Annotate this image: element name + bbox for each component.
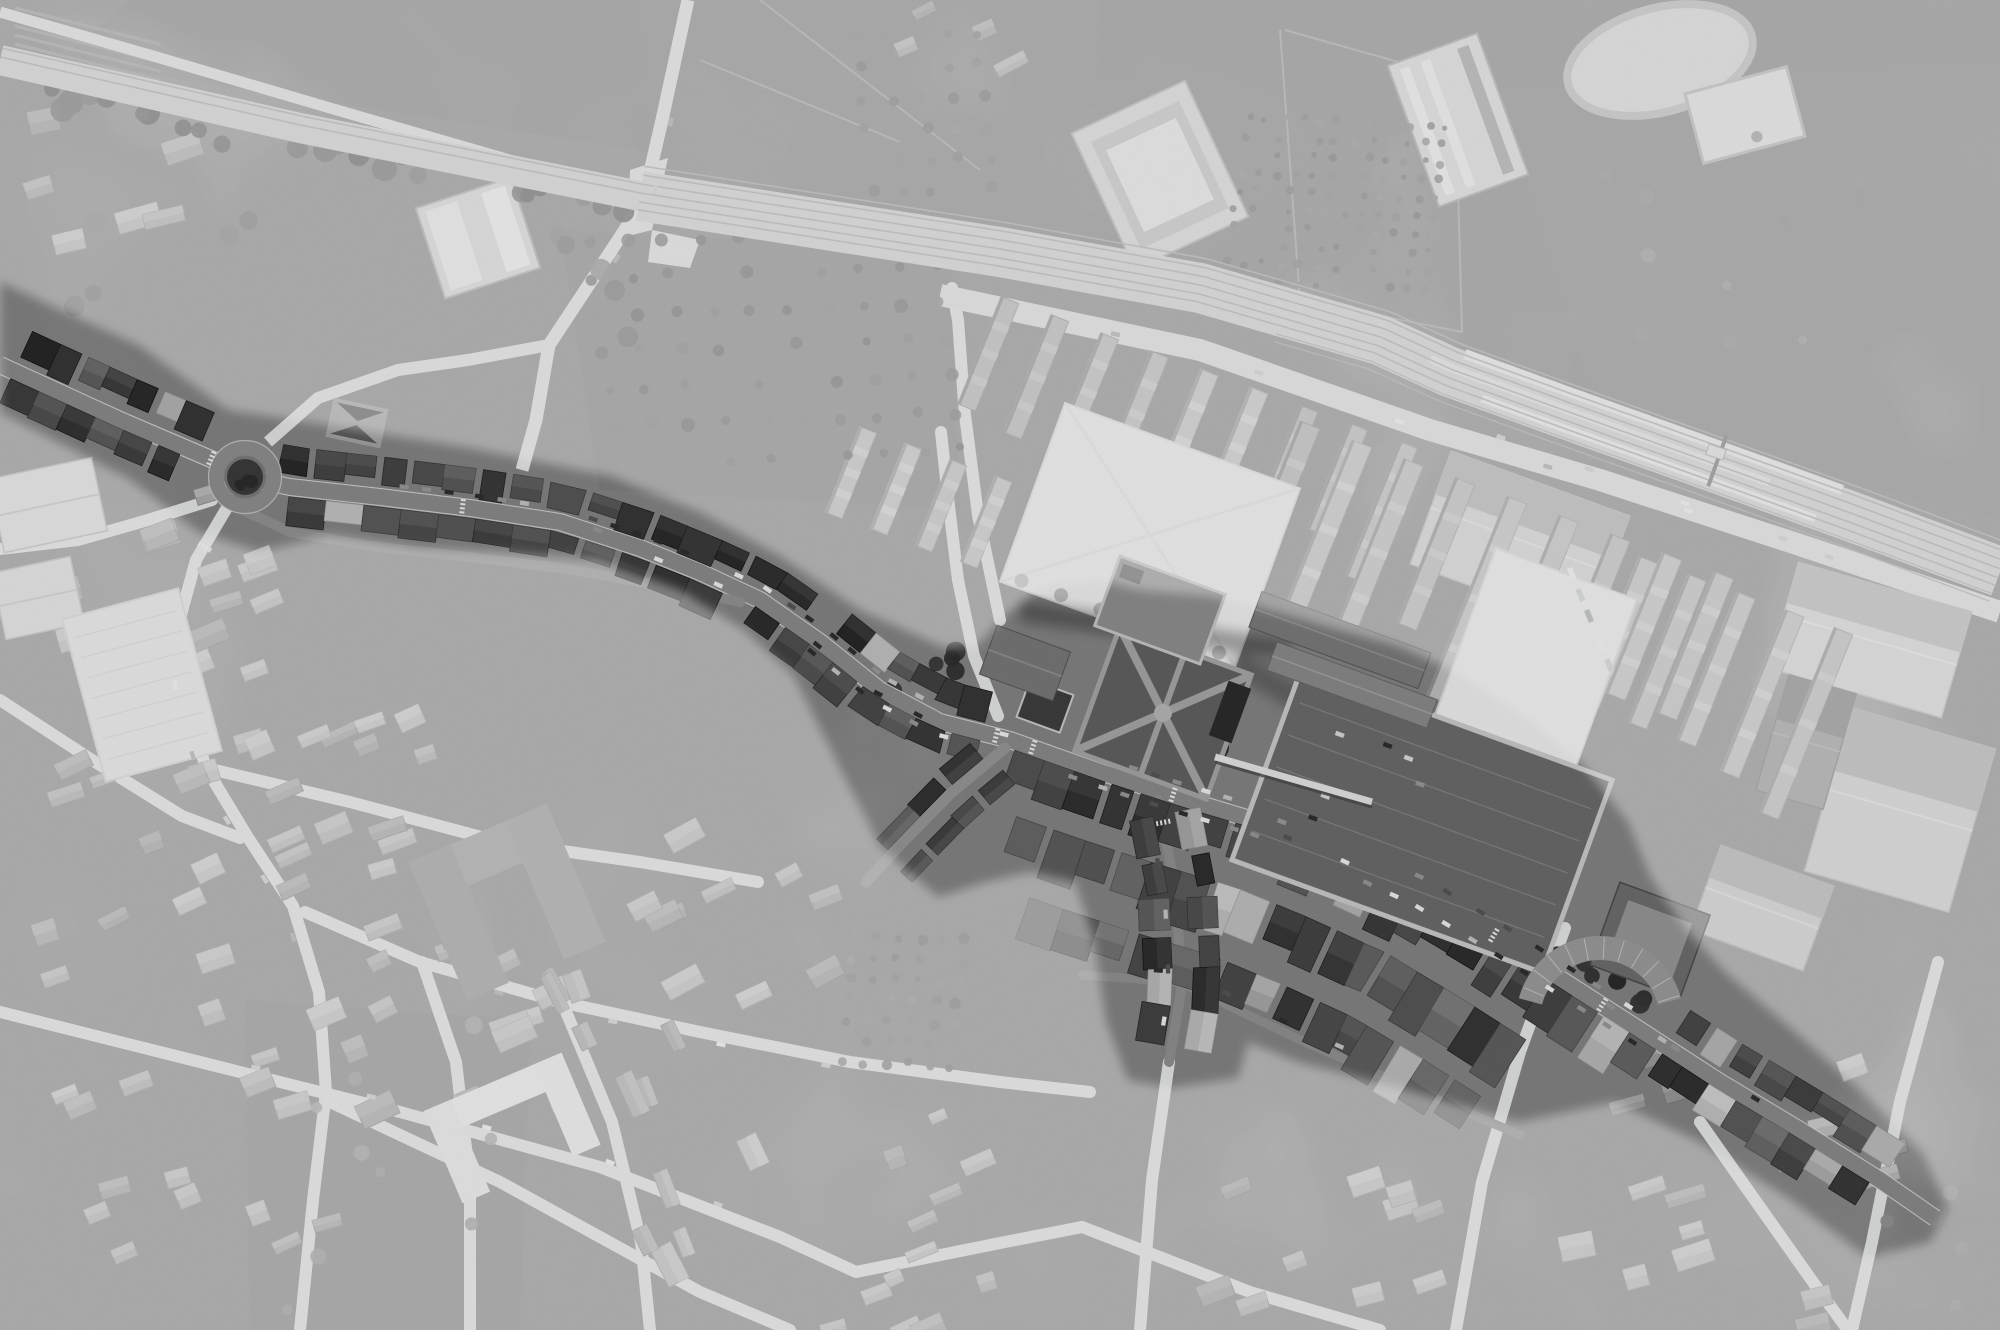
film-grain-light — [0, 0, 2000, 1330]
aerial-map-viewport[interactable]: Top-down grayscale aerial photograph of … — [0, 0, 2000, 1330]
orthophoto-canvas — [0, 0, 2000, 1330]
